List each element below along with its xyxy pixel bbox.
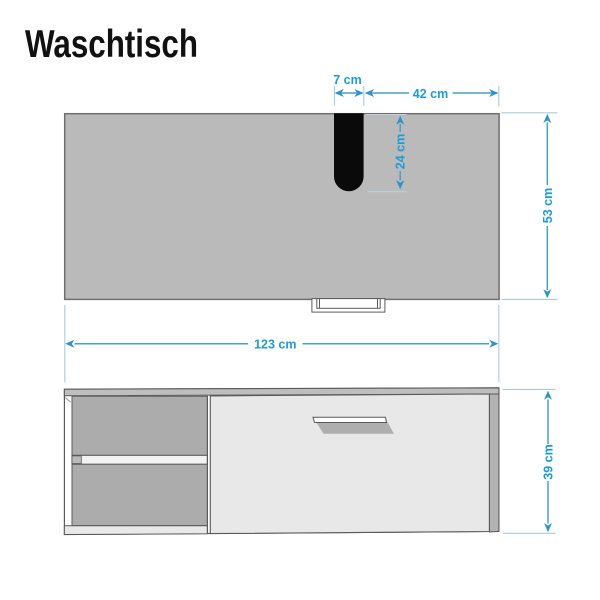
svg-text:53 cm: 53 cm	[541, 188, 555, 223]
svg-text:7 cm: 7 cm	[333, 73, 362, 87]
svg-text:123 cm: 123 cm	[254, 338, 296, 352]
svg-text:24 cm: 24 cm	[394, 134, 408, 169]
svg-text:39 cm: 39 cm	[542, 444, 556, 479]
svg-text:42 cm: 42 cm	[413, 87, 448, 101]
svg-text:Waschtisch: Waschtisch	[25, 23, 198, 66]
